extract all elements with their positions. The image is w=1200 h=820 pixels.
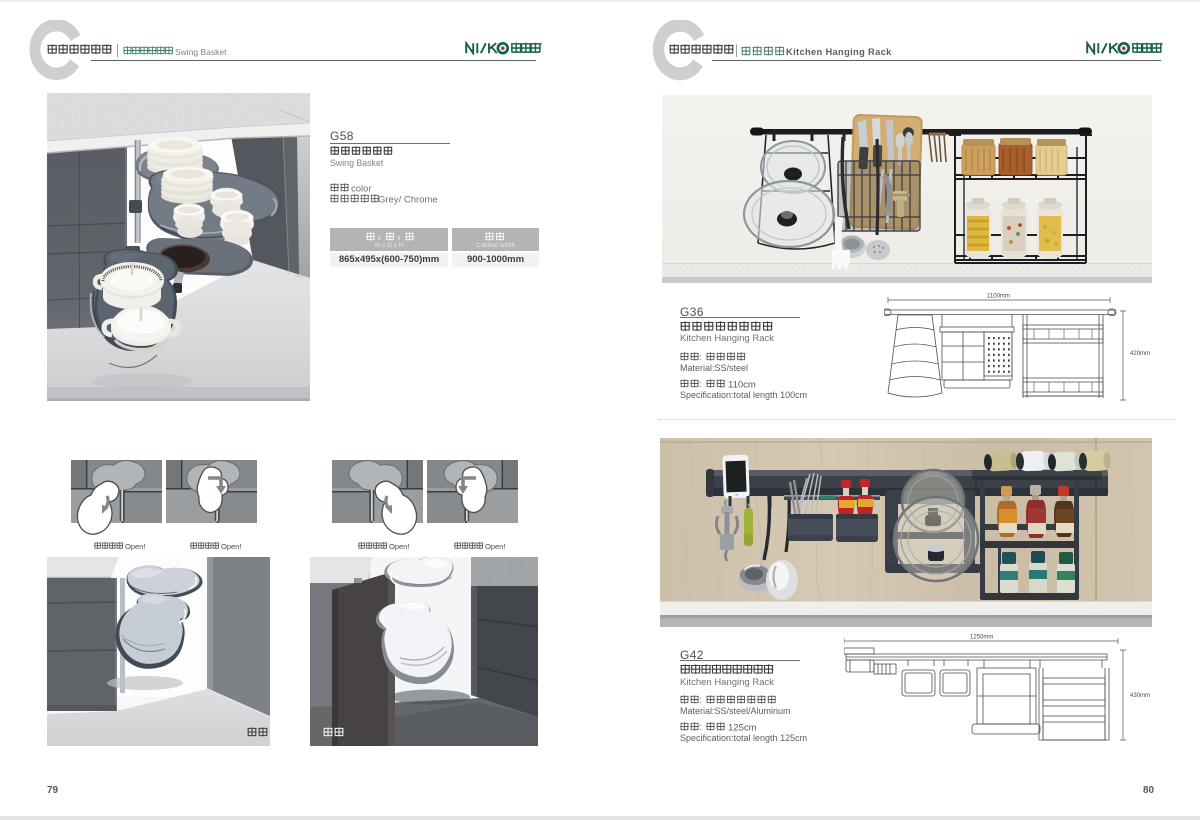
svg-text:Grey/ Chrome: Grey/ Chrome — [378, 194, 438, 204]
svg-text:430mm: 430mm — [1130, 693, 1150, 699]
svg-text:110cm: 110cm — [728, 379, 756, 390]
svg-text:Open!: Open! — [389, 542, 409, 551]
svg-text::: : — [699, 352, 702, 362]
svg-text::: : — [699, 722, 702, 732]
svg-text:1100mm: 1100mm — [987, 294, 1010, 300]
svg-text:Open!: Open! — [221, 542, 241, 551]
svg-text::: : — [699, 379, 702, 389]
svg-text:x: x — [378, 235, 382, 242]
svg-text:x: x — [397, 235, 401, 242]
svg-text:color: color — [351, 184, 372, 194]
svg-text:125cm: 125cm — [728, 722, 757, 733]
svg-text::: : — [699, 695, 702, 705]
svg-text:Open!: Open! — [485, 542, 505, 551]
svg-text:1250mm: 1250mm — [970, 635, 993, 641]
svg-text:420mm: 420mm — [1130, 351, 1150, 357]
svg-text:Open!: Open! — [125, 542, 145, 551]
